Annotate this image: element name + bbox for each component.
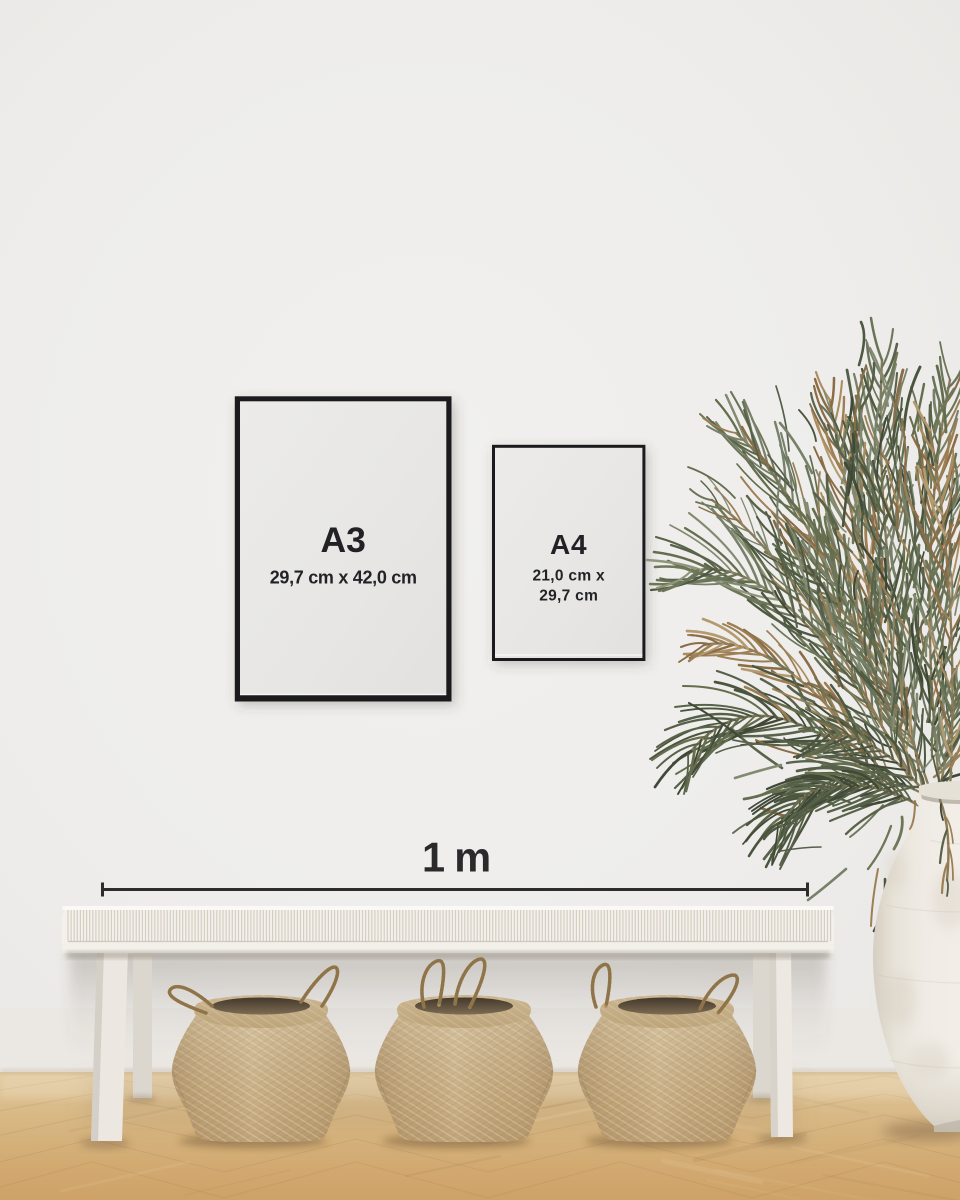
svg-text:A4: A4 xyxy=(550,529,587,560)
svg-text:A3: A3 xyxy=(321,520,366,560)
svg-text:29,7 cm x 42,0 cm: 29,7 cm x 42,0 cm xyxy=(270,568,417,588)
svg-text:21,0 cm x: 21,0 cm x xyxy=(532,567,605,584)
svg-text:29,7 cm: 29,7 cm xyxy=(539,587,598,604)
svg-text:1 m: 1 m xyxy=(422,834,490,881)
